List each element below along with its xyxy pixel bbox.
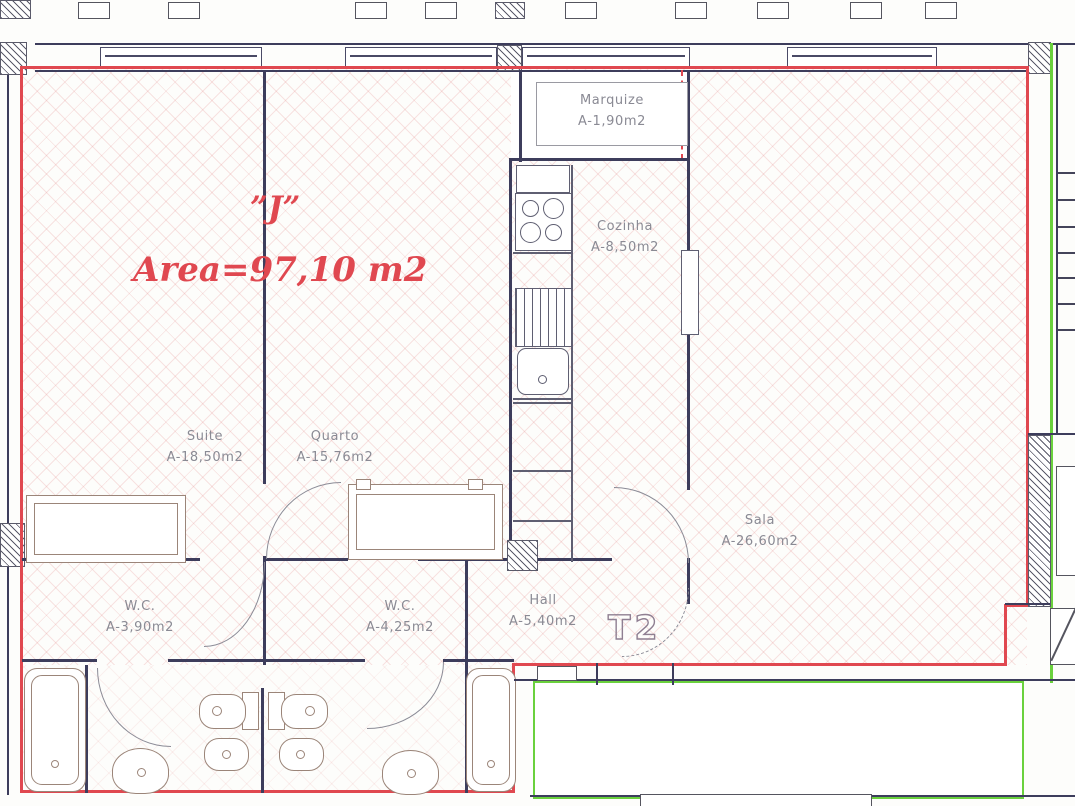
bed-inner	[356, 494, 495, 550]
parapet-pier	[675, 2, 707, 19]
unit-boundary-bottom	[20, 790, 515, 793]
counter-line	[513, 520, 573, 522]
window	[100, 47, 262, 68]
room-area: A-15,76m2	[270, 447, 400, 468]
kitchen-cabinet	[681, 250, 699, 335]
room-area: A-4,25m2	[340, 617, 460, 638]
room-label-hall: Hall A-5,40m2	[488, 590, 598, 633]
wardrobe-inner	[34, 503, 178, 555]
bathtub-inner	[31, 675, 79, 785]
bed-handle	[356, 479, 371, 490]
room-name: Quarto	[270, 426, 400, 447]
stair-tread	[1058, 329, 1075, 331]
wall-marquize-bottom	[509, 158, 690, 161]
kitchen-sink	[517, 348, 569, 395]
window	[522, 47, 690, 68]
drainboard	[515, 288, 572, 347]
unit-id-annotation: ”J”	[250, 190, 300, 226]
bathtub-inner	[472, 675, 510, 785]
parapet-pier	[425, 2, 457, 19]
wall-bath-strip	[443, 659, 514, 662]
room-name: Suite	[145, 426, 265, 447]
stair-tread	[1058, 226, 1075, 228]
stair-tread	[1058, 303, 1075, 305]
wall-marquize-left	[519, 70, 522, 162]
room-name: Hall	[488, 590, 598, 611]
stair-tread	[1058, 252, 1075, 254]
stove-burner	[522, 200, 539, 217]
room-area: A-5,40m2	[488, 611, 598, 632]
exterior-wall-top-outer	[35, 43, 1075, 45]
room-label-suite: Suite A-18,50m2	[145, 426, 265, 469]
room-label-marquize: Marquize A-1,90m2	[537, 83, 687, 133]
room-area: A-3,90m2	[80, 617, 200, 638]
threshold	[537, 666, 577, 681]
unit-boundary-left	[20, 66, 23, 793]
washbasin-drain	[407, 769, 416, 778]
counter-line	[513, 398, 573, 400]
duct-shaft	[1056, 466, 1075, 576]
unit-boundary-mid	[512, 663, 1007, 666]
unit-boundary-top	[20, 66, 1029, 69]
room-name: W.C.	[340, 596, 460, 617]
room-area: A-8,50m2	[565, 237, 685, 258]
marquize-label-box: Marquize A-1,90m2	[536, 82, 688, 146]
room-label-wc2: W.C. A-4,25m2	[340, 596, 460, 639]
stove-burner	[520, 222, 541, 243]
room-name: Cozinha	[565, 216, 685, 237]
wall-wc-partition	[261, 688, 264, 793]
unit-area-annotation: Area=97,10 m2	[133, 250, 427, 290]
bidet-detail	[296, 750, 305, 759]
stair-wall	[1056, 43, 1058, 433]
door-frame	[596, 663, 598, 685]
sink-drain	[538, 375, 547, 384]
wall-pier	[507, 540, 538, 571]
window	[787, 47, 937, 68]
room-name: Sala	[700, 510, 820, 531]
bathtub-drain	[487, 760, 495, 768]
parapet-pier	[565, 2, 597, 19]
room-area: A-18,50m2	[145, 447, 265, 468]
elevator-shaft	[1028, 435, 1051, 607]
exterior-wall-left	[7, 43, 9, 795]
counter-line	[513, 252, 573, 254]
parapet-pier	[925, 2, 957, 19]
toilet	[199, 694, 246, 729]
parapet-pier	[78, 2, 110, 19]
washbasin-drain	[137, 768, 146, 777]
room-label-wc1: W.C. A-3,90m2	[80, 596, 200, 639]
room-name: Marquize	[537, 90, 687, 111]
parapet-pier	[168, 2, 200, 19]
stair-tread	[1058, 172, 1075, 174]
parapet-pier	[355, 2, 387, 19]
stair-tread	[1058, 277, 1075, 279]
bidet-detail	[222, 750, 231, 759]
bathtub-drain	[51, 760, 59, 768]
balcony	[533, 681, 1024, 799]
room-area: A-26,60m2	[700, 531, 820, 552]
counter-line	[513, 470, 573, 472]
room-name: W.C.	[80, 596, 200, 617]
bed-handle	[468, 479, 483, 490]
stove-burner	[543, 198, 564, 219]
unit-boundary-jog	[1004, 604, 1007, 666]
room-area: A-1,90m2	[537, 111, 687, 132]
stair-tread	[1058, 199, 1075, 201]
parapet-pier	[0, 0, 31, 19]
exterior-wall-top-inner	[35, 70, 1027, 72]
window	[345, 47, 497, 68]
kitchen-counter	[516, 165, 570, 193]
parapet-pier	[757, 2, 789, 19]
wall-kitchen-left	[509, 160, 512, 562]
wall-pier	[1028, 42, 1051, 74]
wall-bath-strip	[168, 659, 365, 662]
toilet-detail	[305, 706, 315, 716]
room-label-cozinha: Cozinha A-8,50m2	[565, 216, 685, 259]
door-frame	[672, 663, 674, 685]
room-label-sala: Sala A-26,60m2	[700, 510, 820, 553]
lower-floor-edge	[640, 794, 872, 806]
parapet-pier	[850, 2, 882, 19]
room-label-quarto: Quarto A-15,76m2	[270, 426, 400, 469]
stove-burner	[545, 224, 562, 241]
wall-bath-strip	[22, 659, 97, 662]
unit-type-label: T2	[608, 608, 661, 647]
counter-line	[513, 402, 573, 404]
shaft-wall	[1005, 603, 1050, 605]
parapet-pier	[495, 2, 525, 19]
floor-plan: Marquize A-1,90m2 Cozinha A-8,50m2 Suite…	[0, 0, 1075, 806]
toilet-detail	[212, 706, 222, 716]
